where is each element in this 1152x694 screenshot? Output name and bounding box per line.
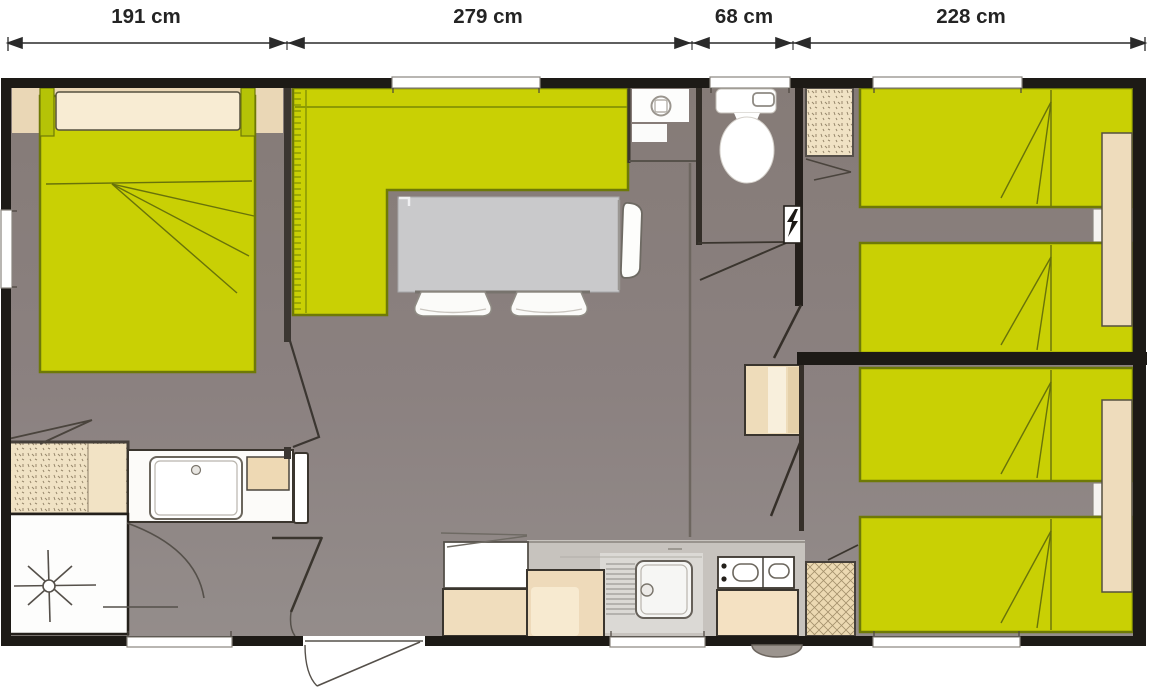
svg-text:279 cm: 279 cm <box>453 5 523 28</box>
svg-text:191 cm: 191 cm <box>111 5 181 28</box>
svg-text:68 cm: 68 cm <box>715 5 773 28</box>
svg-text:228 cm: 228 cm <box>936 5 1006 28</box>
